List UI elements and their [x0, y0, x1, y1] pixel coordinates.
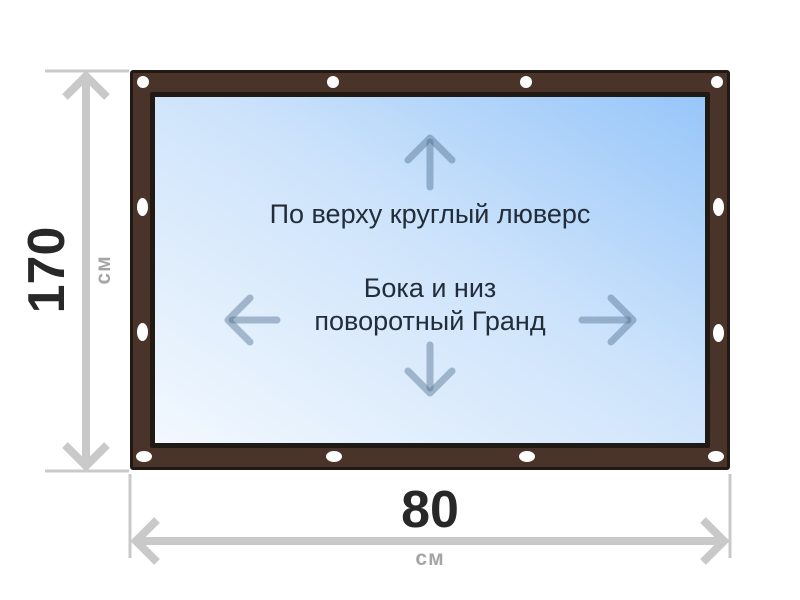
- grommet-icon: [326, 451, 342, 462]
- tarpaulin-diagram: По верху круглый люверс Бока и низ повор…: [0, 0, 800, 600]
- height-unit-label: см: [92, 255, 116, 284]
- width-value-label: 80: [130, 484, 730, 536]
- note-middle-line2: поворотный Гранд: [130, 305, 730, 338]
- note-middle: Бока и низ поворотный Гранд: [130, 272, 730, 338]
- grommet-icon: [327, 76, 339, 88]
- grommet-icon: [708, 451, 724, 462]
- grommet-icon: [520, 76, 532, 88]
- height-value-label: 170: [17, 227, 77, 314]
- grommet-icon: [137, 76, 149, 88]
- grommet-icon: [136, 451, 152, 462]
- note-top: По верху круглый люверс: [130, 198, 730, 231]
- grommet-icon: [711, 76, 723, 88]
- note-middle-line1: Бока и низ: [130, 272, 730, 305]
- tarp-frame: [130, 70, 730, 470]
- width-unit-label: см: [130, 548, 730, 569]
- grommet-icon: [519, 451, 535, 462]
- tarp-panel: [150, 92, 710, 448]
